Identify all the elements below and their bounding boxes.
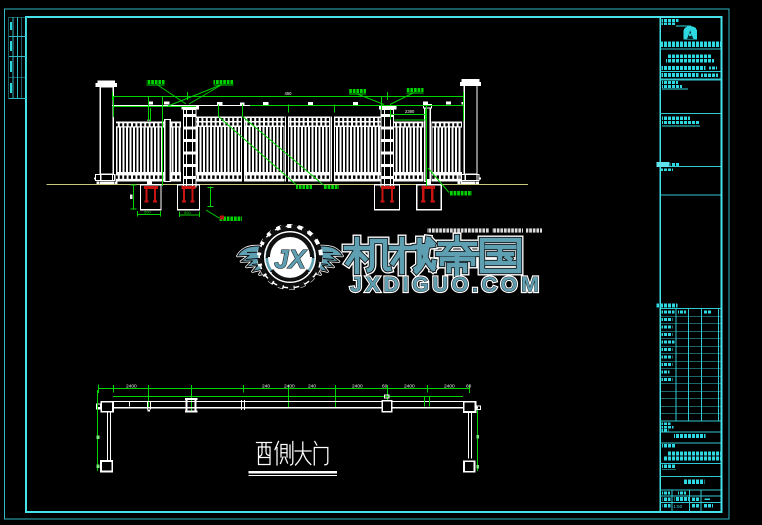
svg-text:2400: 2400 — [126, 384, 137, 390]
svg-text:500: 500 — [184, 210, 191, 215]
svg-text:1:50: 1:50 — [674, 504, 683, 509]
svg-text:60: 60 — [382, 384, 388, 390]
svg-text:2390: 2390 — [405, 109, 415, 114]
svg-text:500: 500 — [144, 210, 151, 215]
svg-text:JX: JX — [274, 244, 307, 274]
svg-text:240: 240 — [308, 384, 316, 390]
svg-text:2400: 2400 — [444, 384, 455, 390]
svg-text:240: 240 — [262, 384, 270, 390]
svg-text:60: 60 — [466, 384, 472, 390]
svg-text:2400: 2400 — [284, 384, 295, 390]
svg-text:JXDIGUO.COM: JXDIGUO.COM — [350, 273, 543, 297]
svg-text:450: 450 — [285, 91, 293, 96]
svg-text:2400: 2400 — [352, 384, 363, 390]
svg-text:2400: 2400 — [404, 384, 415, 390]
